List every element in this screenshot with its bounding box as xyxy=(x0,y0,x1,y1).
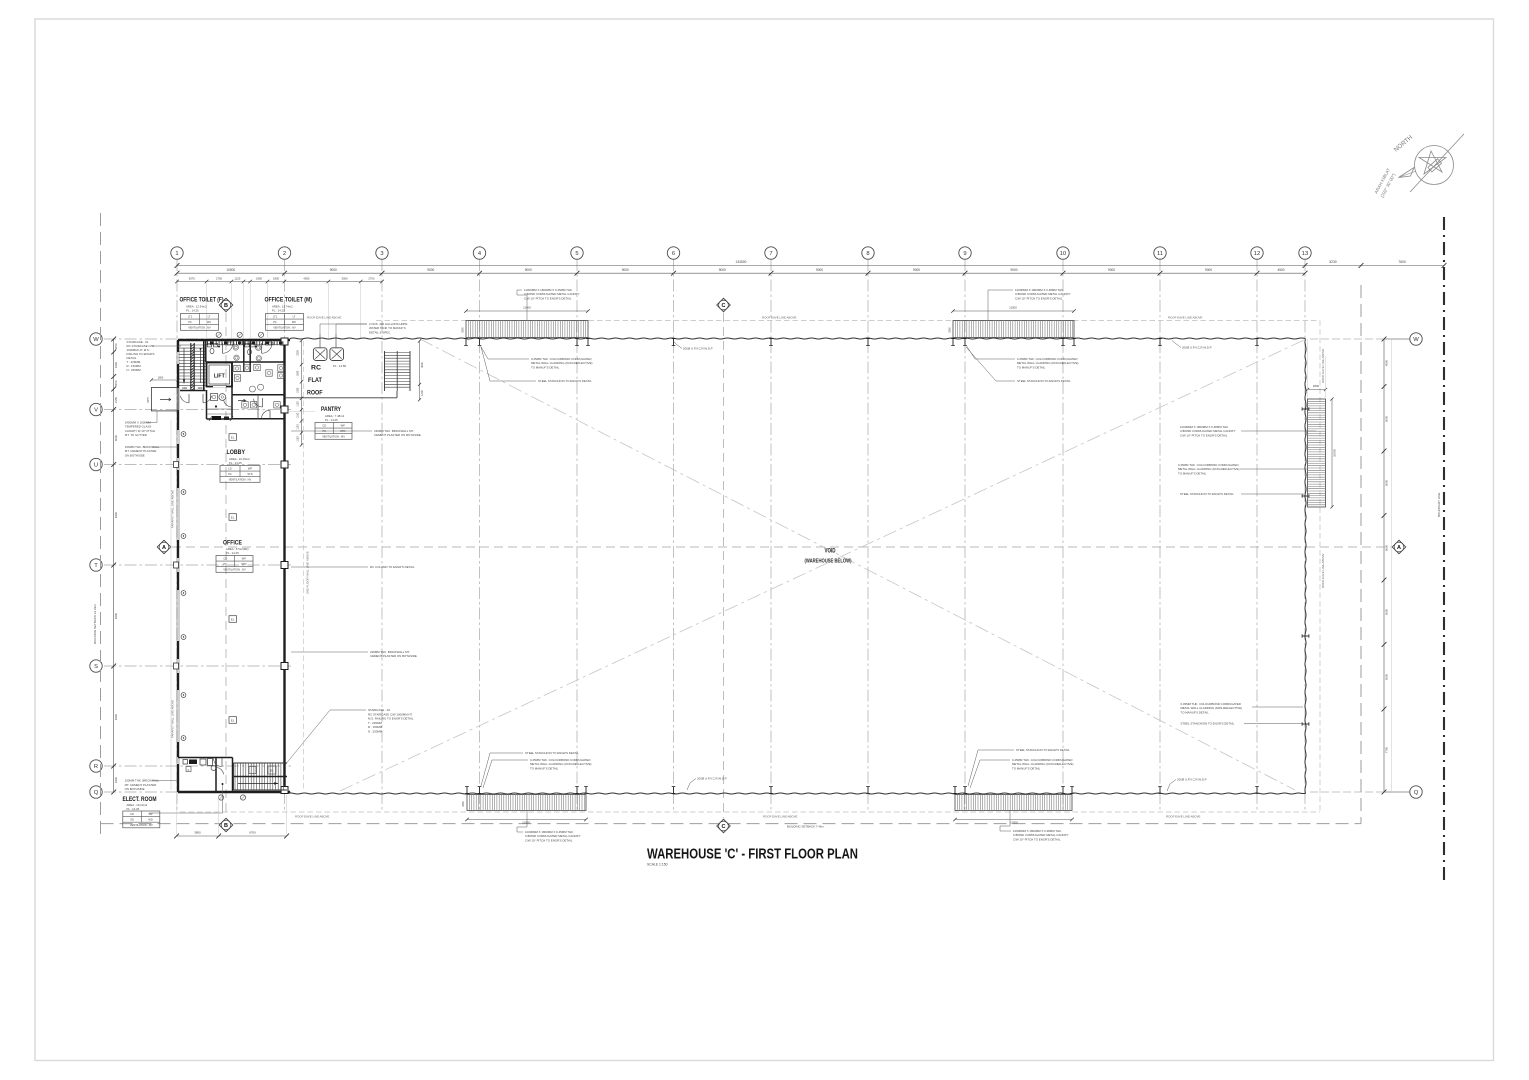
svg-text:B: B xyxy=(224,823,228,829)
svg-text:PL : 14.25: PL : 14.25 xyxy=(127,807,140,811)
svg-text:5: 5 xyxy=(575,251,578,257)
svg-text:LT: LT xyxy=(293,314,296,318)
svg-text:1800: 1800 xyxy=(256,277,262,281)
svg-text:TO MANUF'S DETAIL: TO MANUF'S DETAIL xyxy=(1181,710,1210,714)
svg-text:CD: CD xyxy=(130,812,134,816)
svg-text:200Ø U.P.V.C.R.W.D.P: 200Ø U.P.V.C.R.W.D.P xyxy=(1177,778,1207,782)
svg-text:4050: 4050 xyxy=(303,277,309,281)
svg-text:CEMENT PLASTER ON BOTHSIDE: CEMENT PLASTER ON BOTHSIDE xyxy=(370,654,417,658)
svg-text:ROOF EAVE LINE ABOVE: ROOF EAVE LINE ABOVE xyxy=(762,316,797,320)
svg-text:11: 11 xyxy=(1157,251,1163,257)
svg-text:9000: 9000 xyxy=(816,268,823,272)
svg-text:PC: PC xyxy=(188,320,192,324)
svg-text:2300: 2300 xyxy=(114,361,118,368)
svg-text:VENTILATION : NV: VENTILATION : NV xyxy=(223,568,246,572)
svg-text:C/W 10° PITCH TO ENGR'S DETAIL: C/W 10° PITCH TO ENGR'S DETAIL xyxy=(525,838,573,842)
svg-text:ROOF: ROOF xyxy=(307,390,323,397)
svg-text:8: 8 xyxy=(866,251,869,257)
svg-text:2: 2 xyxy=(283,251,286,257)
svg-text:4500: 4500 xyxy=(1385,359,1389,366)
svg-text:U: U xyxy=(94,463,98,469)
svg-text:OFFICE: OFFICE xyxy=(223,540,242,547)
svg-text:4000: 4000 xyxy=(420,362,424,368)
svg-text:STEEL STANCHION TO ENGR'S DETA: STEEL STANCHION TO ENGR'S DETAIL xyxy=(1180,492,1234,496)
svg-text:C/W 10° PITCH TO ENGR'S DETAIL: C/W 10° PITCH TO ENGR'S DETAIL xyxy=(1180,433,1228,437)
svg-text:PL : 14.25: PL : 14.25 xyxy=(272,309,285,313)
svg-text:PC: PC xyxy=(273,320,277,324)
svg-text:200Ø U.P.V.C.R.W.D.P: 200Ø U.P.V.C.R.W.D.P xyxy=(1182,346,1212,350)
svg-text:MT. TO GUTTER: MT. TO GUTTER xyxy=(125,433,147,437)
svg-text:1: 1 xyxy=(175,251,178,257)
svg-text:2400: 2400 xyxy=(114,776,118,783)
svg-text:WAREHOUSE 'C' - FIRST FLOOR PL: WAREHOUSE 'C' - FIRST FLOOR PLAN xyxy=(647,847,858,863)
svg-text:2ND FLOOR WALL LINE ABOVE: 2ND FLOOR WALL LINE ABOVE xyxy=(306,551,310,594)
svg-text:3675: 3675 xyxy=(189,277,195,281)
svg-text:ON BOTHSIDE: ON BOTHSIDE xyxy=(125,453,145,457)
svg-text:ROOF EAVE LINE ABOVE: ROOF EAVE LINE ABOVE xyxy=(1321,553,1325,588)
svg-text:1150: 1150 xyxy=(297,412,300,418)
svg-text:WD: WD xyxy=(148,817,152,821)
svg-text:11000: 11000 xyxy=(1010,820,1018,824)
svg-text:1800: 1800 xyxy=(297,370,300,376)
svg-text:4500: 4500 xyxy=(1277,268,1284,272)
svg-text:STD: STD xyxy=(340,429,345,433)
svg-text:1150: 1150 xyxy=(114,380,118,386)
svg-text:9000: 9000 xyxy=(525,268,532,272)
svg-text:ROOF EAVE LINE ABOVE: ROOF EAVE LINE ABOVE xyxy=(295,815,330,819)
svg-text:1225: 1225 xyxy=(234,277,240,281)
svg-text:A: A xyxy=(162,545,166,551)
svg-text:9000: 9000 xyxy=(913,268,920,272)
svg-text:12: 12 xyxy=(1254,251,1260,257)
svg-text:7600: 7600 xyxy=(1398,260,1406,264)
svg-text:3: 3 xyxy=(380,251,383,257)
svg-text:1800: 1800 xyxy=(949,327,952,333)
svg-text:TO MANUF'S DETAIL: TO MANUF'S DETAIL xyxy=(530,766,559,770)
svg-text:ROOF EAVE LINE ABOVE: ROOF EAVE LINE ABOVE xyxy=(1321,348,1325,383)
svg-text:N : 250MM: N : 250MM xyxy=(127,368,142,372)
svg-text:PL : 14.80: PL : 14.80 xyxy=(333,364,346,368)
svg-text:CEMENT PLASTER ON BOTHSIDE: CEMENT PLASTER ON BOTHSIDE xyxy=(374,433,421,437)
svg-text:10500: 10500 xyxy=(226,268,235,272)
svg-text:ROOF EAVE LINE ABOVE: ROOF EAVE LINE ABOVE xyxy=(307,316,342,320)
svg-text:VENTILATION : NV: VENTILATION : NV xyxy=(273,326,296,330)
svg-text:9400: 9400 xyxy=(114,511,118,518)
svg-text:BUILDING SETBACK 12.29m: BUILDING SETBACK 12.29m xyxy=(93,604,97,644)
svg-text:C: C xyxy=(722,303,726,309)
svg-text:9000: 9000 xyxy=(719,268,726,272)
svg-text:EL: EL xyxy=(270,769,274,773)
svg-text:LD: LD xyxy=(228,466,231,470)
svg-text:1150: 1150 xyxy=(297,436,300,442)
svg-text:STEEL STANCHION TO ENGR'S DETA: STEEL STANCHION TO ENGR'S DETAIL xyxy=(1016,748,1070,752)
svg-text:WP: WP xyxy=(341,423,345,427)
svg-text:134500: 134500 xyxy=(735,260,746,264)
svg-text:LT1: LT1 xyxy=(273,314,278,318)
svg-text:Q: Q xyxy=(1414,790,1419,796)
svg-text:DETAIL & SPEC.: DETAIL & SPEC. xyxy=(369,330,391,334)
svg-text:B: B xyxy=(224,303,228,309)
svg-text:PARAPET WALL LINE ABOVE: PARAPET WALL LINE ABOVE xyxy=(171,700,175,738)
svg-text:TO MANUF'S DETAIL: TO MANUF'S DETAIL xyxy=(1178,471,1207,475)
svg-text:6000: 6000 xyxy=(114,434,118,441)
svg-text:2150: 2150 xyxy=(114,396,118,403)
svg-text:1000: 1000 xyxy=(297,387,300,393)
svg-text:1200: 1200 xyxy=(420,390,424,396)
svg-text:200Ø U.P.V.C.R.W.D.P: 200Ø U.P.V.C.R.W.D.P xyxy=(697,777,727,781)
svg-text:1800: 1800 xyxy=(1313,384,1320,388)
svg-text:6000: 6000 xyxy=(1385,415,1389,422)
svg-text:RC COLUMN TO ENGR'S DETAIL: RC COLUMN TO ENGR'S DETAIL xyxy=(370,565,415,569)
svg-text:LOBBY: LOBBY xyxy=(227,449,246,456)
svg-text:W: W xyxy=(1413,337,1419,343)
svg-text:6700: 6700 xyxy=(249,831,256,835)
svg-text:6000: 6000 xyxy=(1385,479,1389,486)
svg-text:WC: WC xyxy=(292,320,296,324)
svg-text:PC: PC xyxy=(228,472,232,476)
svg-text:9: 9 xyxy=(963,251,966,257)
svg-text:1800: 1800 xyxy=(462,801,465,807)
svg-text:200Ø U.P.V.C.R.W.D.P: 200Ø U.P.V.C.R.W.D.P xyxy=(683,347,713,351)
svg-text:A: A xyxy=(1397,545,1401,551)
svg-text:ROOF EAVE LINE ABOVE: ROOF EAVE LINE ABOVE xyxy=(1168,316,1203,320)
svg-text:PANTRY: PANTRY xyxy=(321,406,341,413)
svg-text:WP: WP xyxy=(242,556,246,560)
svg-text:CD: CD xyxy=(322,423,326,427)
svg-text:C/W 10° PITCH TO ENGR'S DETAIL: C/W 10° PITCH TO ENGR'S DETAIL xyxy=(524,296,572,300)
svg-text:CD: CD xyxy=(223,556,227,560)
svg-text:TO MANUF'S DETAIL: TO MANUF'S DETAIL xyxy=(1012,766,1041,770)
svg-text:2475: 2475 xyxy=(147,397,150,403)
svg-text:9300: 9300 xyxy=(114,713,118,720)
svg-text:VENTILATION : NV: VENTILATION : NV xyxy=(188,326,211,330)
svg-text:9000: 9000 xyxy=(1205,268,1212,272)
svg-text:11000: 11000 xyxy=(1009,306,1017,310)
svg-text:WP: WP xyxy=(148,812,152,816)
svg-text:6000: 6000 xyxy=(1385,673,1389,680)
svg-text:TO MANUF'S DETAIL: TO MANUF'S DETAIL xyxy=(1017,365,1046,369)
svg-text:PL : 14.25: PL : 14.25 xyxy=(186,309,199,313)
svg-text:9000: 9000 xyxy=(622,268,629,272)
svg-text:BUILDING SETBACK 7.46m: BUILDING SETBACK 7.46m xyxy=(787,824,824,828)
svg-text:1800: 1800 xyxy=(158,376,164,379)
svg-text:EL: EL xyxy=(231,516,235,520)
svg-text:6000: 6000 xyxy=(1385,608,1389,615)
svg-text:TO MANUF'S DETAIL: TO MANUF'S DETAIL xyxy=(531,365,560,369)
svg-text:2700: 2700 xyxy=(216,277,222,281)
svg-text:PARAPET WALL LINE ABOVE: PARAPET WALL LINE ABOVE xyxy=(171,490,175,528)
svg-text:LT1: LT1 xyxy=(188,314,193,318)
svg-text:3850: 3850 xyxy=(194,831,201,835)
svg-text:EL: EL xyxy=(231,618,235,622)
svg-text:2700: 2700 xyxy=(368,277,374,281)
svg-text:C/W 10° PITCH TO ENGR'S DETAIL: C/W 10° PITCH TO ENGR'S DETAIL xyxy=(1013,837,1061,841)
svg-text:VENTILATION : MV: VENTILATION : MV xyxy=(322,435,345,439)
svg-text:Q: Q xyxy=(94,790,99,796)
svg-text:EL: EL xyxy=(231,436,235,440)
svg-text:STEEL STANCHION TO ENGR'S DETA: STEEL STANCHION TO ENGR'S DETAIL xyxy=(525,751,579,755)
svg-text:STD: STD xyxy=(247,472,252,476)
svg-text:VENTILATION : NV: VENTILATION : NV xyxy=(229,478,252,482)
svg-text:9000: 9000 xyxy=(1108,268,1115,272)
svg-text:3000: 3000 xyxy=(342,277,348,281)
svg-text:VOID: VOID xyxy=(825,548,836,555)
svg-text:STD: STD xyxy=(241,562,246,566)
svg-text:6000: 6000 xyxy=(1385,544,1389,551)
svg-text:T: T xyxy=(94,563,98,569)
svg-text:PC: PC xyxy=(223,562,227,566)
svg-text:PL : 14.25: PL : 14.25 xyxy=(325,418,338,422)
svg-text:10: 10 xyxy=(1060,251,1066,257)
svg-text:PL : 14.25: PL : 14.25 xyxy=(229,461,242,465)
svg-text:9400: 9400 xyxy=(114,612,118,619)
svg-text:R: R xyxy=(94,764,98,770)
svg-text:9000: 9000 xyxy=(427,268,434,272)
svg-text:5230: 5230 xyxy=(1329,260,1337,264)
svg-text:PL : 14.25: PL : 14.25 xyxy=(226,551,239,555)
svg-text:WC: WC xyxy=(207,320,211,324)
svg-text:OFFICE TOILET (F): OFFICE TOILET (F) xyxy=(180,297,224,304)
svg-text:1800: 1800 xyxy=(273,277,279,281)
svg-text:RC: RC xyxy=(311,365,321,372)
svg-text:FLAT: FLAT xyxy=(308,377,322,384)
svg-text:6: 6 xyxy=(672,251,675,257)
svg-text:S: S xyxy=(94,664,98,670)
svg-text:11000: 11000 xyxy=(522,820,530,824)
svg-text:13: 13 xyxy=(1302,251,1308,257)
svg-text:(WAREHOUSE BELOW): (WAREHOUSE BELOW) xyxy=(805,559,852,565)
svg-text:STEEL STANCHION TO ENGR'S DETA: STEEL STANCHION TO ENGR'S DETAIL xyxy=(538,379,592,383)
svg-text:VENTILATION : MV: VENTILATION : MV xyxy=(130,823,153,827)
svg-text:9000: 9000 xyxy=(330,268,337,272)
svg-text:STEEL STANCHION TO ENGR'S DETA: STEEL STANCHION TO ENGR'S DETAIL xyxy=(1181,722,1235,726)
svg-text:C/W 10° PITCH TO ENGR'S DETAIL: C/W 10° PITCH TO ENGR'S DETAIL xyxy=(1015,296,1063,300)
svg-text:ROOF EAVE LINE ABOVE: ROOF EAVE LINE ABOVE xyxy=(763,815,798,819)
svg-text:EL: EL xyxy=(231,719,235,723)
svg-text:NORTH: NORTH xyxy=(1393,134,1414,153)
svg-text:2300: 2300 xyxy=(297,350,300,356)
svg-text:N : 250MM: N : 250MM xyxy=(368,730,383,734)
svg-text:K: K xyxy=(188,768,190,772)
svg-text:ON BOTHSIDE: ON BOTHSIDE xyxy=(125,787,145,791)
svg-text:WP: WP xyxy=(248,466,252,470)
svg-text:SCALE 1:150: SCALE 1:150 xyxy=(647,863,668,867)
svg-text:W: W xyxy=(93,337,99,343)
svg-text:C: C xyxy=(722,824,726,830)
svg-text:LT: LT xyxy=(208,314,211,318)
svg-text:PC: PC xyxy=(322,429,326,433)
svg-text:LIFT: LIFT xyxy=(214,373,226,379)
svg-text:1150: 1150 xyxy=(114,343,118,349)
svg-text:ELECT. ROOM: ELECT. ROOM xyxy=(123,796,157,803)
svg-text:1100: 1100 xyxy=(297,401,300,407)
svg-text:V: V xyxy=(94,408,98,414)
svg-text:9000: 9000 xyxy=(1010,268,1017,272)
svg-text:STEEL STANCHION TO ENGR'S DETA: STEEL STANCHION TO ENGR'S DETAIL xyxy=(1017,379,1071,383)
svg-text:1800: 1800 xyxy=(462,327,465,333)
svg-text:10000: 10000 xyxy=(1333,449,1337,457)
svg-text:BOUNDARY LINE: BOUNDARY LINE xyxy=(1437,493,1441,517)
svg-text:OFFICE TOILET (M): OFFICE TOILET (M) xyxy=(265,297,313,304)
svg-text:7: 7 xyxy=(769,251,772,257)
svg-text:1150: 1150 xyxy=(297,424,300,430)
svg-text:ROOF EAVE LINE ABOVE: ROOF EAVE LINE ABOVE xyxy=(1166,815,1201,819)
svg-text:7700: 7700 xyxy=(1385,746,1389,753)
svg-text:SD: SD xyxy=(130,817,134,821)
